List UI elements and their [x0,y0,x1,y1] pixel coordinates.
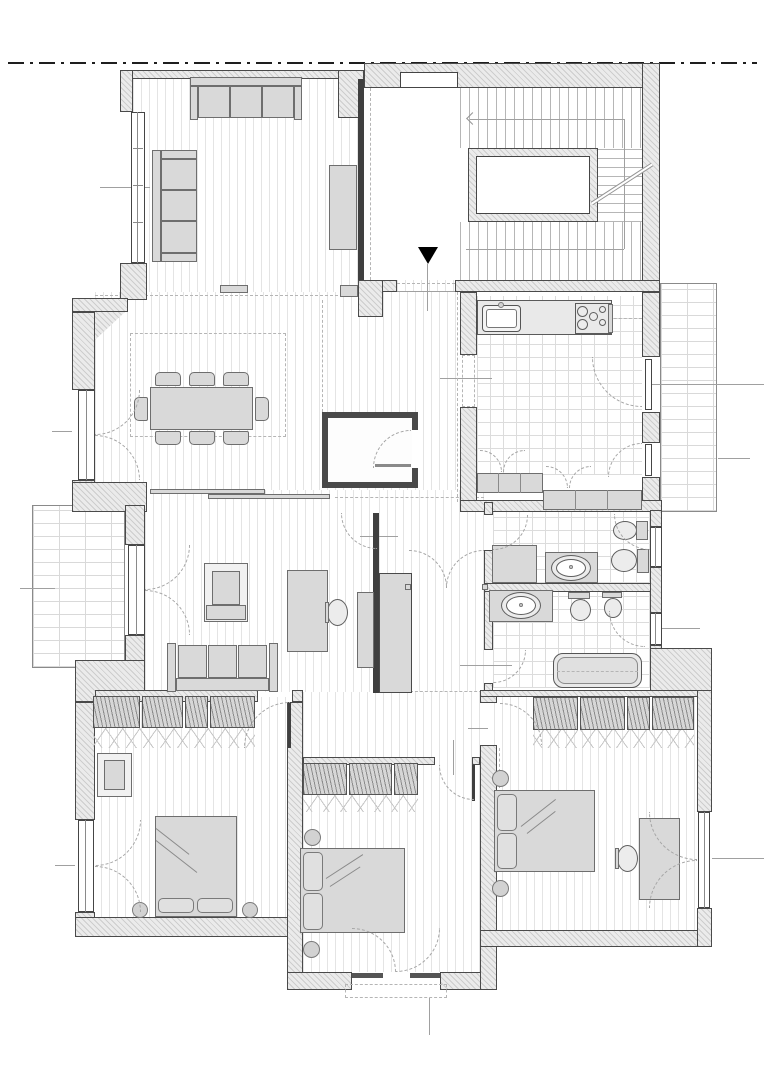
wall-bedroom1-bottom [75,917,303,937]
wardrobe-section [185,696,208,728]
dining-chair [155,372,181,386]
armchair-base [206,605,246,620]
wall-kitchen-left-b [460,407,477,505]
partition-living-entry [358,79,364,280]
right-balcony [660,283,717,512]
hall-bookcase [379,573,412,693]
dining-chair [189,431,215,445]
reference-line [650,384,764,385]
sofa-cushion [161,190,197,221]
wardrobe-section [394,763,418,795]
cabinet-divider [575,490,576,510]
cabinet-divider [607,490,608,510]
wall-bedroom1-left-a [75,702,95,820]
wardrobe-section [652,697,694,730]
wardrobe-hanging-marks [533,730,694,748]
entrance-axis-line [427,264,428,311]
armchair-seat [104,760,125,790]
sliding-door-panel [208,494,330,499]
wall-kitchen-right-pier [642,412,660,443]
wall-bedroom3-right-a [697,690,712,812]
armchair-seat [212,571,240,605]
dining-chair [223,431,249,445]
kitchen-base-cabinet-left [477,473,543,493]
sofa-back [152,150,161,262]
door-jamb [482,584,488,590]
window-tick [133,148,143,149]
office-chair [617,845,638,872]
floor-plan [0,0,764,1080]
kitchen-door-jamb [462,355,475,407]
stair-flight-top [460,88,642,148]
stair-run-line-bottom [466,249,624,250]
pillow [497,833,517,869]
wardrobe-section [627,697,650,730]
sofa-arm [294,86,302,120]
dashed-landing-edge [370,88,371,280]
bedside-table [304,829,321,846]
building-entry-recess [400,72,458,88]
sofa-back [176,678,269,691]
burner [577,319,588,330]
burner [599,306,606,313]
wardrobe-section [533,697,578,730]
sofa-arm [190,86,198,120]
bath1-cabinet [492,545,537,583]
bedside-table [492,880,509,897]
wall-living-left-upper [120,70,133,112]
toilet [611,549,637,572]
reference-line [55,865,75,866]
sofa-cushion [178,645,207,678]
wall-livlower-left-a [125,505,145,545]
wall-living-left-lower [120,263,147,300]
wardrobe-section [349,763,392,795]
wall-stair-right [642,63,660,310]
sofa-arm [161,150,197,159]
living-cabinet [357,592,374,668]
sofa-cushion [262,86,294,118]
bedroom2-balcony-door-panel [352,973,383,978]
wall-kitchen-left-a [460,292,477,355]
wall-bath-right-a [650,510,662,527]
wardrobe-section [142,696,183,728]
window-mullion [136,545,137,635]
sofa-cushion [208,645,237,678]
stair-run-line-top [470,119,624,120]
living-window [131,112,145,263]
toilet-tank [637,549,649,573]
kitchen-balcony-door-2 [645,444,652,476]
basin-drain [569,565,573,569]
office-chair-back [615,848,619,869]
wardrobe-section [93,696,140,728]
cabinet-divider [520,473,521,493]
kitchen-base-cabinet-right [543,490,642,510]
wall-dining-left-a [72,312,95,390]
pillow [303,852,323,891]
wall-bedroom2-top-b [472,757,480,765]
door-jamb [405,584,411,590]
entry-sill [397,291,455,292]
juliet-balcony [345,984,447,998]
stair-well-void [476,156,590,214]
window-mullion [655,613,656,645]
wall-dining-jog [72,298,128,312]
burner [599,319,606,326]
wall-bedroom2-bottom-a [287,972,352,990]
entrance-arrow-icon [418,247,438,264]
toilet [570,599,591,621]
wardrobe-section [303,763,347,795]
wall-corner-hall [358,280,383,317]
pillow [303,893,323,930]
dining-table [150,387,253,430]
kitchen-faucet [498,302,504,308]
wardrobe-section [210,696,255,728]
basin-drain [519,603,523,607]
reference-line [662,628,700,629]
bedside-table [242,902,258,918]
dashed-guide [322,300,323,412]
window-mullion [137,112,138,263]
sofa-cushion [161,221,197,253]
wall-bedroom3-top [480,690,712,697]
sofa-arm [161,253,197,262]
toilet-tank [568,592,590,599]
dashed-guide [457,292,458,502]
pillow [197,898,233,913]
window-mullion [704,812,705,908]
window-mullion [86,390,87,480]
window-tick [133,185,143,186]
reference-line [718,458,750,459]
dashed-hall-opening [410,691,487,692]
bedroom1-french-door [78,820,94,912]
sofa-back [190,77,302,86]
reference-line [52,431,72,432]
sofa-cushion [161,159,197,190]
wall-living-bedroom1-b [292,690,303,702]
bedside-table [492,770,509,787]
dining-chair [223,372,249,386]
wall-hall-bath-a [484,502,493,515]
radiator [220,285,248,293]
reference-line [20,588,55,589]
wardrobe-hanging-marks [93,728,255,748]
bath2-window [650,613,662,645]
kitchen-balcony-door-1 [645,359,652,410]
wardrobe-hanging-marks [303,795,418,812]
dining-chair [189,372,215,386]
bedside-table [303,941,320,958]
bath1-window [650,527,662,567]
wall-kitchen-top [455,280,660,292]
burner [577,306,588,317]
radiator [340,285,358,297]
kitchen-oven-controls [608,304,613,333]
wall-bedroom3-bottom [480,930,712,947]
left-balcony [32,505,125,668]
burner [589,312,598,321]
dashed-entry-opening [397,283,455,284]
living-cabinet-tall [329,165,357,250]
floor-entry-landing [364,88,460,280]
sofa-cushion [230,86,262,118]
stair-flight-bottom [460,222,642,280]
dining-chair [155,431,181,445]
desk [287,570,328,652]
office-chair-back [325,602,329,623]
bedroom2-balcony-door-panel [410,973,440,978]
reference-line [712,858,764,859]
window-mullion [85,820,86,912]
sofa-cushion [198,86,230,118]
bathtub-centerline [557,671,638,672]
window-tick [133,222,143,223]
reference-line [468,728,488,729]
reference-line [429,998,430,1035]
pillow [497,794,517,831]
wall-bedroom3-right-b [697,908,712,947]
dining-chair [255,397,269,421]
wall-bath-right-b [650,567,662,613]
window-mullion [655,527,656,567]
kitchen-sink-basin [486,309,517,328]
sofa-cushion [238,645,267,678]
pillow [158,898,194,913]
wall-kitchen-right-a [642,292,660,357]
sofa-arm [269,643,278,692]
sofa-arm [167,643,176,692]
cabinet-divider [498,473,499,493]
floor-corridor [303,692,487,763]
wardrobe-section [580,697,625,730]
closet-door-opening [412,430,418,468]
office-chair [327,599,348,626]
